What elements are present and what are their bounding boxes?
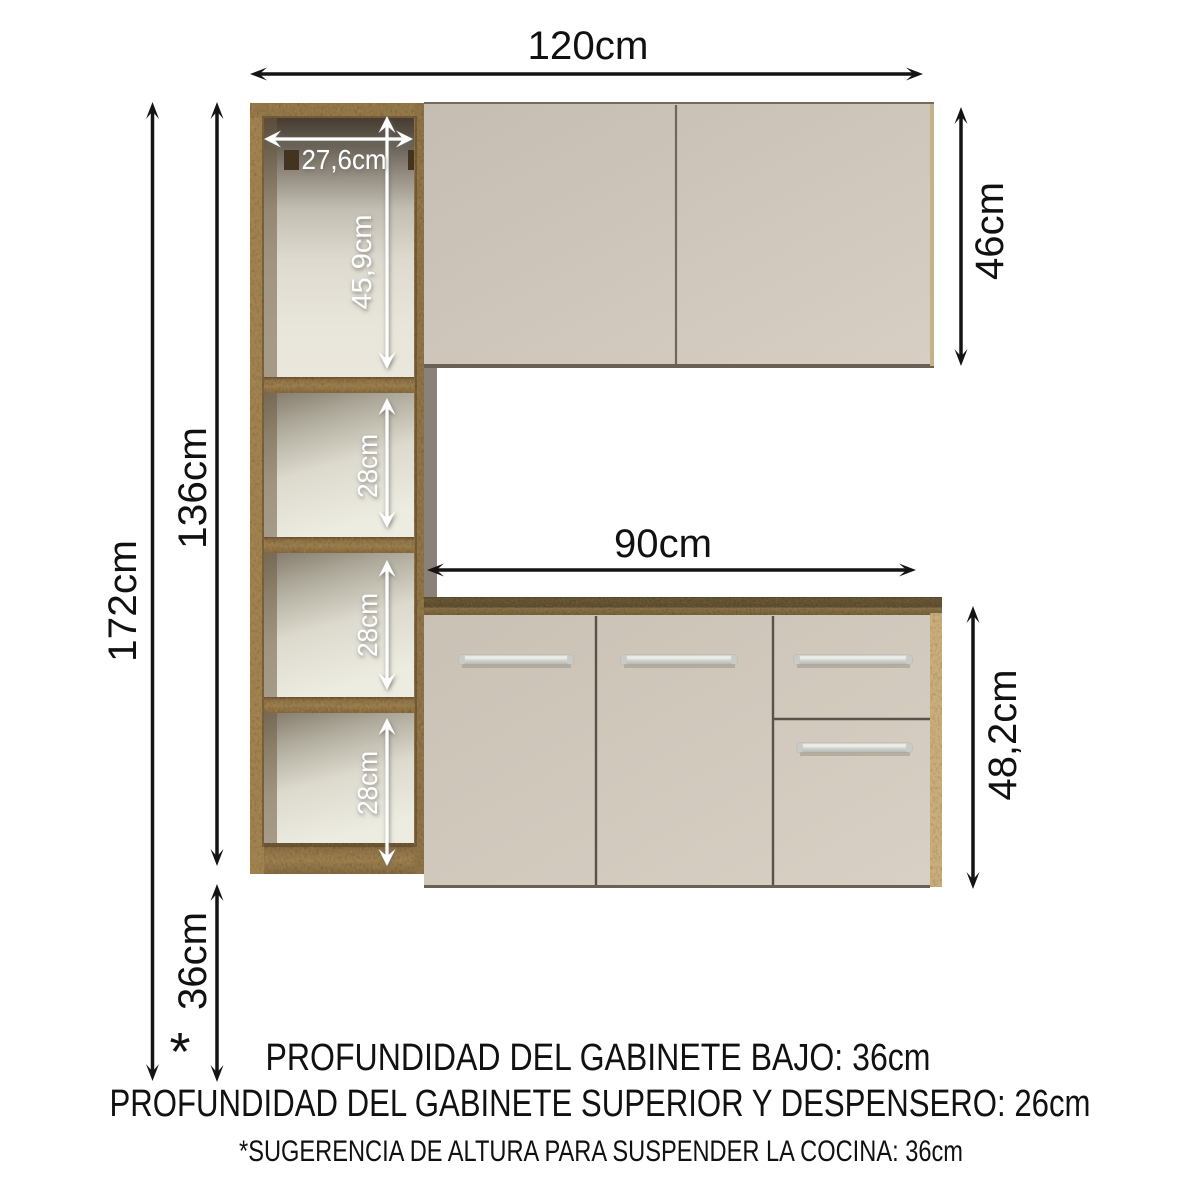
svg-text:45,9cm: 45,9cm <box>346 215 377 310</box>
svg-text:136cm: 136cm <box>171 427 215 549</box>
svg-text:46cm: 46cm <box>968 182 1012 280</box>
svg-text:PROFUNDIDAD DEL GABINETE SUPER: PROFUNDIDAD DEL GABINETE SUPERIOR Y DESP… <box>110 1083 1091 1125</box>
svg-text:27,6cm: 27,6cm <box>302 144 387 175</box>
svg-text:*SUGERENCIA DE ALTURA PARA SUS: *SUGERENCIA DE ALTURA PARA SUSPENDER LA … <box>239 1135 963 1168</box>
svg-text:36cm: 36cm <box>171 912 215 1010</box>
svg-text:120cm: 120cm <box>528 24 649 68</box>
svg-text:PROFUNDIDAD DEL GABINETE BAJO:: PROFUNDIDAD DEL GABINETE BAJO: 36cm <box>266 1037 931 1079</box>
svg-text:28cm: 28cm <box>352 434 383 498</box>
svg-text:28cm: 28cm <box>352 751 383 815</box>
svg-text:28cm: 28cm <box>352 593 383 657</box>
svg-text:*: * <box>169 1022 190 1082</box>
svg-text:90cm: 90cm <box>614 522 712 566</box>
svg-text:172cm: 172cm <box>101 540 145 662</box>
svg-text:48,2cm: 48,2cm <box>981 670 1025 801</box>
